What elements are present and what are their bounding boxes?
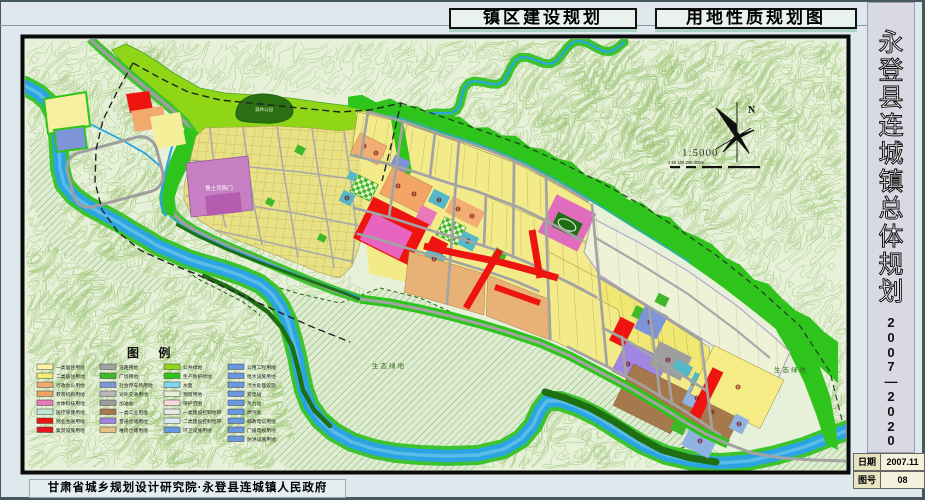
svg-text:热力站: 热力站 <box>247 400 262 407</box>
svg-text:鲁土司衙门: 鲁土司衙门 <box>205 184 233 192</box>
svg-text:道路用地: 道路用地 <box>119 364 138 371</box>
svg-text:行政办公用地: 行政办公用地 <box>56 382 85 389</box>
svg-text:一类建设控制地带: 一类建设控制地带 <box>183 409 222 416</box>
svg-text:一类工业用地: 一类工业用地 <box>119 409 148 416</box>
svg-text:文体科技用地: 文体科技用地 <box>56 400 85 407</box>
svg-text:变电站: 变电站 <box>247 391 262 398</box>
svg-text:生产防护绿地: 生产防护绿地 <box>183 373 212 380</box>
svg-text:堆场仓储用地: 堆场仓储用地 <box>119 427 148 434</box>
svg-text:N: N <box>748 105 756 116</box>
svg-text:一类居住用地: 一类居住用地 <box>56 364 85 371</box>
svg-text:防洪设施用地: 防洪设施用地 <box>247 436 276 443</box>
svg-text:森林公园: 森林公园 <box>255 106 273 113</box>
svg-text:集贸设施用地: 集贸设施用地 <box>56 427 85 434</box>
svg-text:医疗保健用地: 医疗保健用地 <box>56 409 85 416</box>
svg-text:生态绿地: 生态绿地 <box>774 365 808 374</box>
svg-text:水面: 水面 <box>183 382 193 389</box>
svg-text:1:5000: 1:5000 <box>682 147 719 159</box>
svg-text:预留用地: 预留用地 <box>183 391 202 398</box>
svg-text:0 50 100 200 40: 0 50 100 200 400m <box>668 160 705 165</box>
svg-text:普通仓储用地: 普通仓储用地 <box>119 418 148 425</box>
svg-text:公用工程用地: 公用工程用地 <box>247 364 276 371</box>
svg-text:加油站: 加油站 <box>119 400 134 407</box>
svg-text:保护范围: 保护范围 <box>183 400 202 407</box>
svg-text:对外交通用地: 对外交通用地 <box>119 391 148 398</box>
svg-text:教育机构用地: 教育机构用地 <box>56 391 85 398</box>
svg-text:邮政电信用地: 邮政电信用地 <box>247 418 276 425</box>
svg-text:二类建设控制地带: 二类建设控制地带 <box>183 418 222 425</box>
svg-text:广播电视用地: 广播电视用地 <box>247 427 276 434</box>
svg-text:燃气站: 燃气站 <box>247 409 262 416</box>
svg-text:环卫设施用地: 环卫设施用地 <box>183 427 212 434</box>
svg-text:公共绿地: 公共绿地 <box>183 364 202 371</box>
svg-text:广场用地: 广场用地 <box>119 373 138 380</box>
svg-text:污水处理设施: 污水处理设施 <box>247 382 276 389</box>
svg-text:社会停车场用地: 社会停车场用地 <box>119 382 153 389</box>
svg-text:图 例: 图 例 <box>127 345 178 360</box>
svg-text:生态绿地: 生态绿地 <box>372 361 406 370</box>
svg-text:商业金融用地: 商业金融用地 <box>56 418 85 425</box>
svg-text:二类居住用地: 二类居住用地 <box>56 373 85 380</box>
svg-text:给水设施用地: 给水设施用地 <box>247 373 276 380</box>
